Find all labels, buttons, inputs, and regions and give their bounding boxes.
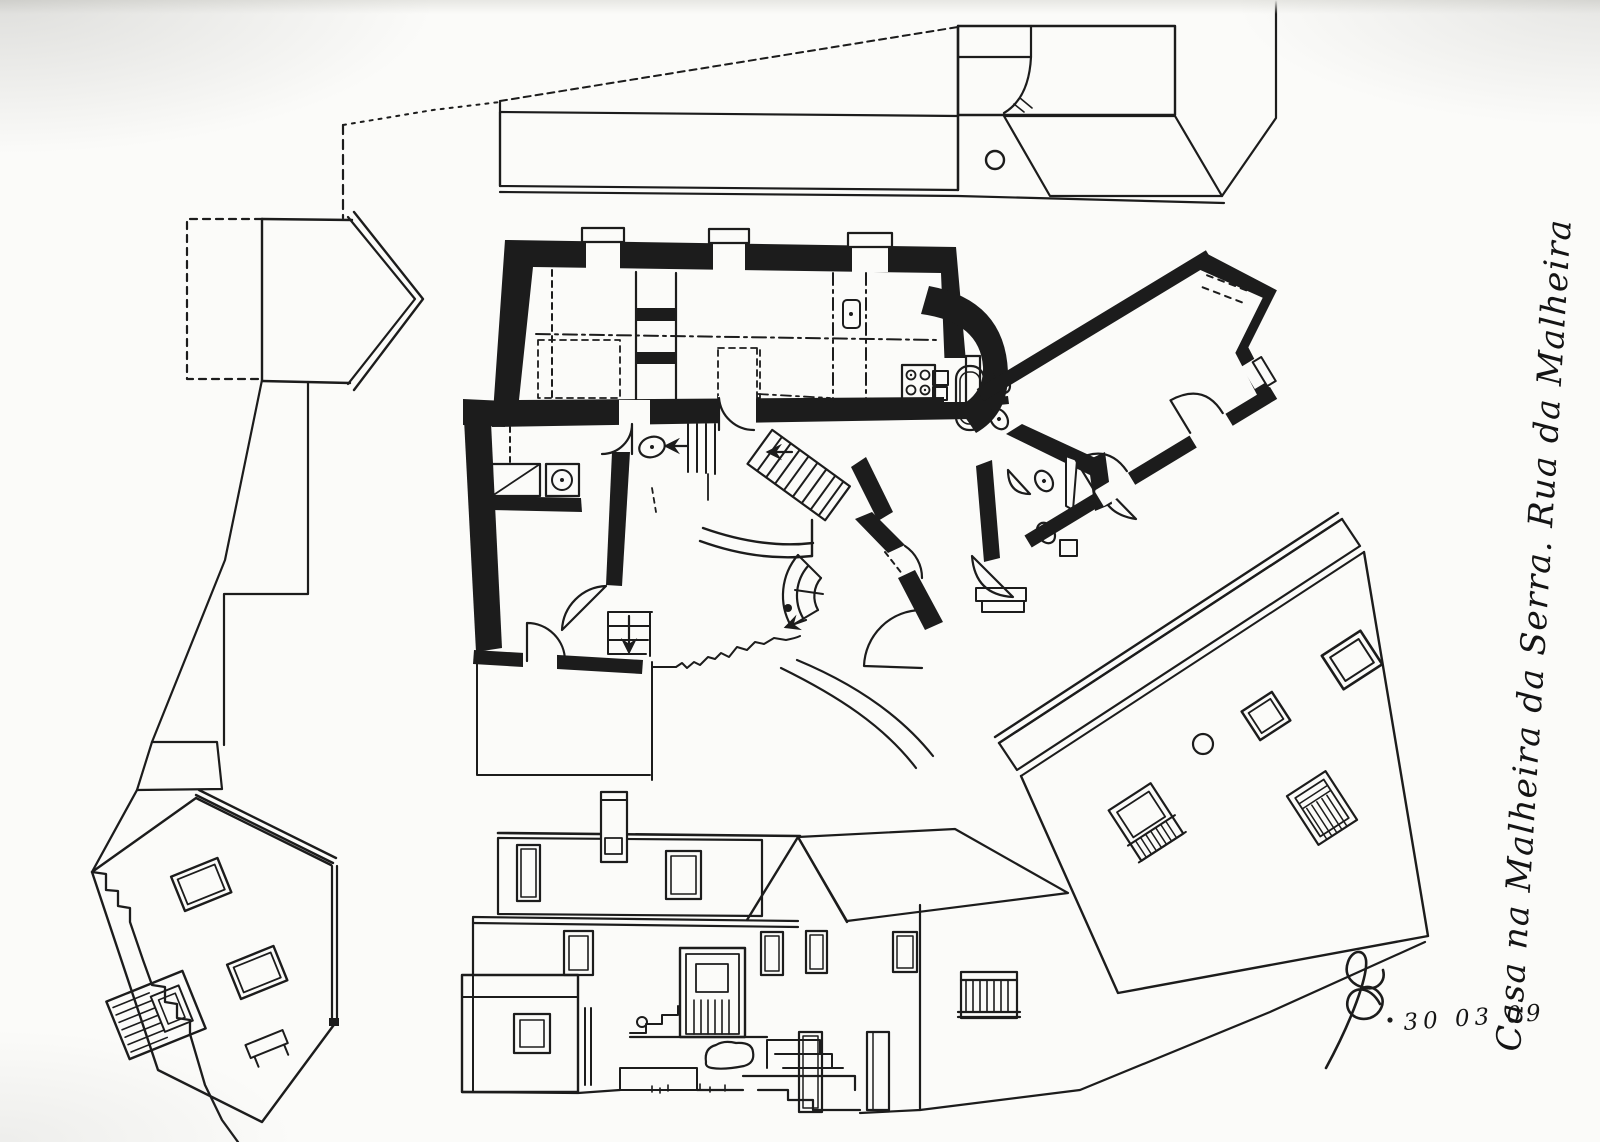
rotated-building-elevation xyxy=(995,513,1428,993)
sketch-canvas: Casa na Malheira da Serra. Rua da Malhei… xyxy=(0,0,1600,1142)
boundary-stepped-line xyxy=(92,790,238,1142)
window-upper-right xyxy=(1322,631,1382,690)
pilaster xyxy=(867,1032,889,1110)
slatted-door xyxy=(106,971,205,1059)
existing-wall-chevron xyxy=(262,212,423,390)
spiral-stair xyxy=(783,555,823,627)
roof-eave-double-line xyxy=(500,192,1224,203)
boundary-line-b xyxy=(224,382,308,745)
wing-bottom-wall xyxy=(1024,387,1277,548)
terrace-door-swing xyxy=(972,556,1013,597)
annex xyxy=(462,975,578,1092)
bathroom-partition-wall xyxy=(1006,424,1102,477)
stair-side-wall xyxy=(851,457,893,521)
roof-skylight-1 xyxy=(517,845,540,901)
facade-outline xyxy=(1021,552,1428,993)
boundary-quad xyxy=(137,742,222,790)
upper-block-interior xyxy=(536,270,938,400)
courtyard-walls xyxy=(855,512,1026,668)
skylight-window-1 xyxy=(171,858,231,911)
interior-wall-dark xyxy=(490,496,582,512)
laundry-fixtures xyxy=(492,427,579,496)
ground-wiggle-line xyxy=(676,636,800,668)
courtyard-door-swing xyxy=(864,610,922,668)
roof-chimney-circle xyxy=(986,151,1004,169)
partition-door-swing xyxy=(562,586,606,630)
window-shuttered xyxy=(1287,771,1357,845)
street-elevation xyxy=(462,792,1425,1113)
stove xyxy=(902,365,935,400)
roof-band-hatched xyxy=(999,519,1360,770)
lower-unit-left-wall xyxy=(463,400,502,652)
boundary-line-a xyxy=(152,380,262,742)
window-balcony xyxy=(1106,782,1186,863)
gable-windows xyxy=(761,931,827,975)
fascia-double-line xyxy=(196,790,336,863)
receded-window xyxy=(893,932,917,972)
lower-unit xyxy=(463,400,715,678)
ridge-line xyxy=(498,833,800,836)
main-stair xyxy=(748,430,850,520)
exterior-steps xyxy=(608,612,652,656)
toilet-3 xyxy=(1031,467,1056,494)
downpipe xyxy=(332,866,337,1020)
skylight-window-2 xyxy=(227,946,287,999)
facade-circle xyxy=(1193,734,1213,754)
demolished-structure-dashed-rect xyxy=(187,219,262,380)
lower-bath-door xyxy=(1008,470,1030,494)
lower-bath-left-wall xyxy=(976,460,1000,562)
architect-signature xyxy=(1326,952,1393,1068)
roof-plan xyxy=(500,0,1276,203)
shower-tray xyxy=(1060,540,1077,556)
property-line-top-right xyxy=(1222,0,1276,196)
site-boundary-lines xyxy=(92,102,500,1142)
facade-window-upper xyxy=(564,931,593,975)
wing-top-wall xyxy=(977,250,1213,401)
ground-line xyxy=(462,942,1425,1113)
roof-top-right-block xyxy=(958,26,1175,190)
annotations: Casa na Malheira da Serra. Rua da Malhei… xyxy=(1326,217,1580,1068)
interior-partition xyxy=(606,452,630,586)
ramp-path xyxy=(781,660,933,768)
roof-slope-vertical-hatch xyxy=(500,112,958,190)
chimney xyxy=(601,792,627,862)
architectural-sketch-page: Casa na Malheira da Serra. Rua da Malhei… xyxy=(0,0,1600,1142)
curved-wall-path xyxy=(700,520,813,557)
entry-steps xyxy=(652,424,715,512)
shower-screen xyxy=(1066,456,1077,510)
threshold-step2 xyxy=(982,601,1024,612)
roof-skylight-2 xyxy=(666,851,701,899)
balcony-window xyxy=(958,972,1020,1018)
bench xyxy=(245,1030,291,1068)
wc-toilet xyxy=(637,433,688,460)
terrace-lines xyxy=(477,654,676,780)
wardrobe-shelf-dark xyxy=(636,308,676,321)
roof-ridge-sketch-line xyxy=(500,27,958,101)
right-roof-hatched xyxy=(798,829,1068,921)
roof-slope-diagonal-hatch xyxy=(1004,116,1222,196)
left-house-elevation xyxy=(92,790,339,1122)
roof-fascia xyxy=(995,513,1342,743)
handwritten-title: Casa na Malheira da Serra. Rua da Malhei… xyxy=(1489,217,1580,1052)
boundary-dotted-line xyxy=(343,102,500,125)
stone xyxy=(706,1042,754,1069)
main-door xyxy=(680,948,745,1037)
window-middle xyxy=(1242,692,1291,740)
wardrobe-shelf-dark2 xyxy=(636,352,676,364)
